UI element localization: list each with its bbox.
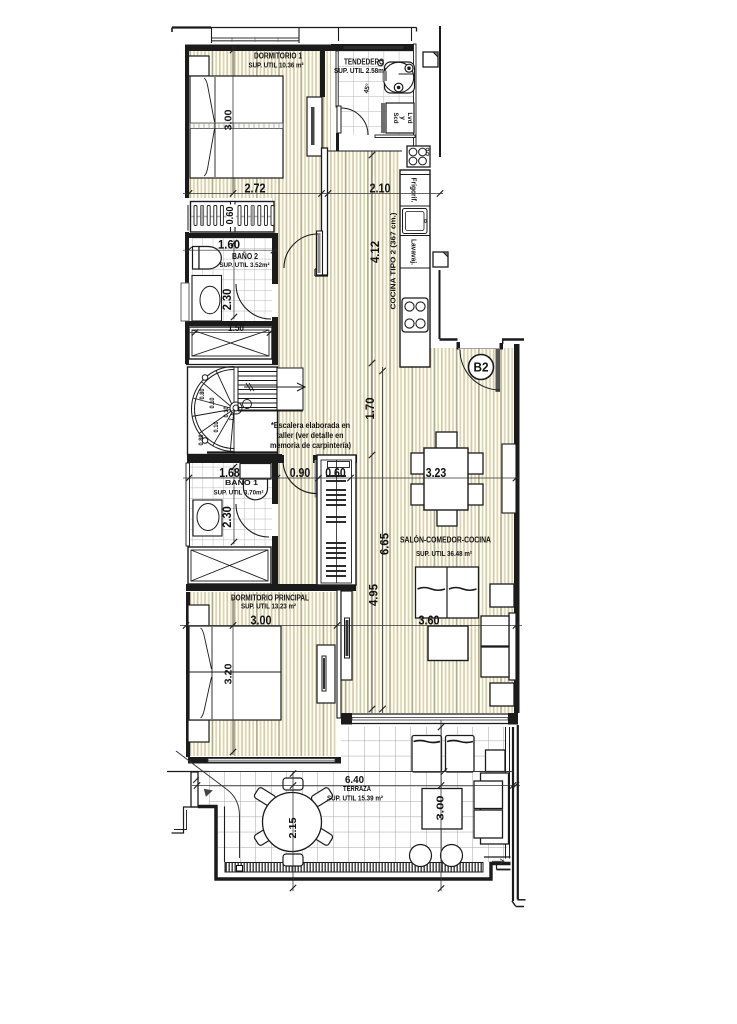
svg-text:Frigorif.: Frigorif. <box>410 178 417 203</box>
svg-text:3.23: 3.23 <box>426 466 447 480</box>
svg-text:BAÑO 2: BAÑO 2 <box>232 252 258 261</box>
svg-text:BAÑO 1: BAÑO 1 <box>225 478 258 487</box>
svg-text:0.80: 0.80 <box>200 388 206 400</box>
svg-text:1.70: 1.70 <box>363 397 377 419</box>
svg-text:3.60: 3.60 <box>419 613 440 627</box>
svg-text:0.10: 0.10 <box>210 397 216 409</box>
svg-text:B2: B2 <box>474 360 489 375</box>
svg-text:4.12: 4.12 <box>368 241 382 263</box>
svg-text:TENDEDERO: TENDEDERO <box>344 58 384 67</box>
svg-text:3.00: 3.00 <box>251 613 272 627</box>
svg-text:SALÓN-COMEDOR-COCINA: SALÓN-COMEDOR-COCINA <box>400 536 491 545</box>
svg-text:0.80: 0.80 <box>199 434 205 446</box>
svg-text:memoria de carpintería): memoria de carpintería) <box>270 441 351 450</box>
svg-text:Scd: Scd <box>392 113 399 124</box>
svg-text:DORMITORIO PRINCIPAL: DORMITORIO PRINCIPAL <box>231 594 309 603</box>
svg-text:0.90: 0.90 <box>290 466 311 480</box>
svg-text:SUP. UTIL 15.39 m²: SUP. UTIL 15.39 m² <box>327 795 384 802</box>
svg-text:Lvd: Lvd <box>406 113 413 124</box>
svg-text:SUP. UTIL 13.23 m²: SUP. UTIL 13.23 m² <box>241 604 297 611</box>
svg-text:*Escalera elaborada en: *Escalera elaborada en <box>271 421 350 430</box>
svg-text:SUP. UTIL 36.48 m²: SUP. UTIL 36.48 m² <box>416 549 472 558</box>
svg-text:SUP. UTIL 2.58m²: SUP. UTIL 2.58m² <box>334 68 387 75</box>
svg-text:3.00: 3.00 <box>223 109 235 130</box>
svg-text:4.95: 4.95 <box>367 584 381 606</box>
svg-text:0.60: 0.60 <box>224 206 236 224</box>
svg-text:y: y <box>399 116 406 120</box>
svg-text:DORMITORIO 1: DORMITORIO 1 <box>254 52 302 61</box>
svg-text:0.60: 0.60 <box>325 466 346 480</box>
svg-text:6.65: 6.65 <box>378 533 392 555</box>
svg-text:1.50: 1.50 <box>228 323 244 334</box>
svg-text:SUP. UTIL 3.70m²: SUP. UTIL 3.70m² <box>214 490 265 497</box>
svg-text:taller (ver detalle en: taller (ver detalle en <box>277 431 344 440</box>
svg-text:TERRAZA: TERRAZA <box>343 784 371 793</box>
svg-text:SUP. UTIL 10.36 m²: SUP. UTIL 10.36 m² <box>249 62 305 69</box>
svg-text:2.30: 2.30 <box>222 289 234 311</box>
svg-text:COCINA TIPO 2 (367 cm.): COCINA TIPO 2 (367 cm.) <box>389 212 398 310</box>
svg-text:SUP. UTIL 3.52m²: SUP. UTIL 3.52m² <box>220 262 271 269</box>
svg-text:2.15: 2.15 <box>287 817 299 838</box>
svg-text:0.10: 0.10 <box>214 421 220 433</box>
svg-text:2.72: 2.72 <box>245 182 266 196</box>
svg-text:2.30: 2.30 <box>222 506 234 528</box>
svg-text:3.00: 3.00 <box>435 795 447 820</box>
svg-text:3.20: 3.20 <box>223 663 235 684</box>
svg-text:2.10: 2.10 <box>370 182 391 196</box>
svg-text:Lavavaj.: Lavavaj. <box>410 239 417 265</box>
svg-text:1.60: 1.60 <box>218 238 240 252</box>
